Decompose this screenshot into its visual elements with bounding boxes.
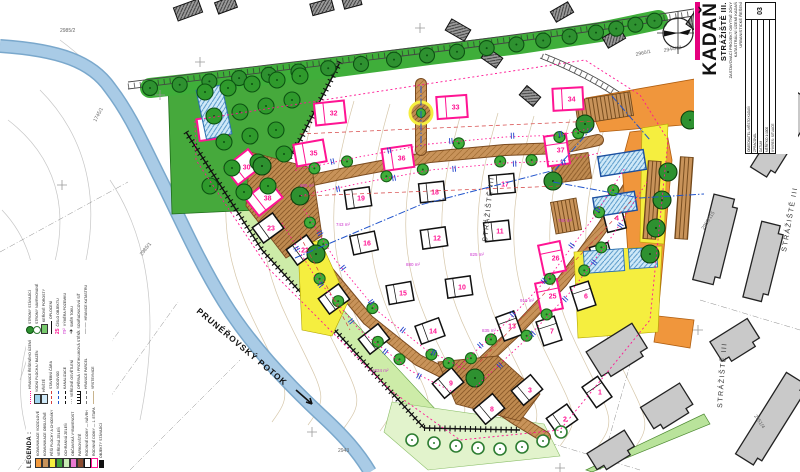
legend-number-sample: 25 (55, 328, 61, 334)
legend-item-label: PARKOVIŠTĚ (77, 434, 83, 456)
legend-item: +SOUŘADNICOVÁ SÍŤ (76, 262, 82, 334)
house-number: 1 (598, 389, 602, 396)
legend-item-label: VEŘEJNÁ ZELEŇ (56, 427, 62, 456)
tree-center (612, 189, 614, 191)
tree-center (542, 440, 544, 442)
existing-small-building (310, 0, 334, 16)
existing-small-building (173, 0, 202, 21)
tree-center (327, 67, 329, 69)
tree-center (486, 47, 488, 49)
legend-item-label: VODNÍ PLOCHA / BAZÉN (34, 350, 40, 392)
existing-apartment-block (736, 372, 800, 467)
tree-center (231, 167, 233, 169)
legend-item-label: OBJEKTY STÁVAJÍCÍ (98, 423, 104, 458)
house-number: 16 (363, 240, 371, 247)
tree-center (569, 36, 571, 38)
house-number: 2 (563, 416, 567, 423)
tree-center (267, 185, 269, 187)
utility-connection-mark (513, 161, 516, 167)
legend-item-label: OBČANSKÁ VYBAVENOST (70, 412, 76, 456)
legend-dashed-line (51, 391, 52, 404)
house-number: 35 (310, 150, 318, 157)
house-number: 23 (267, 225, 275, 232)
legend-dashdot-line: —·— (83, 322, 89, 334)
house-number: 8 (490, 406, 494, 413)
legend-item: PARKOVIŠTĚ (77, 406, 83, 468)
legend-item-label: STROMY STÁVAJÍCÍ (27, 290, 33, 324)
legend-arrow-icon: ➔ (69, 329, 75, 334)
tree-center (448, 362, 450, 364)
legend-item: STROMY NAVRHOVANÉ (34, 262, 40, 334)
tree-center (490, 338, 492, 340)
tree-center (313, 167, 315, 169)
house-number: 38 (264, 195, 272, 202)
legend-fill-swatch (49, 458, 56, 468)
tree-center (227, 87, 229, 89)
title-city: KADAŇ (701, 2, 720, 76)
legend-item: 25ČÍSLO OBJEKTU (55, 262, 61, 334)
legend-fill-swatch (77, 458, 84, 468)
legend-item-label: ČÍSLO OBJEKTU (55, 298, 61, 326)
tree-center (499, 160, 501, 162)
tree-center (595, 32, 597, 34)
tree-center (615, 28, 617, 30)
tree-center (560, 431, 562, 433)
house-number: 32 (330, 110, 338, 117)
tree-center (179, 84, 181, 86)
district-label: STRÁŽIŠTĚ III (779, 186, 799, 252)
plot-area-label: 835 m² (482, 328, 497, 333)
tree-center (583, 269, 585, 271)
contour-line (110, 180, 150, 420)
planned-house-stage1: 32 (314, 100, 346, 125)
tree-center (337, 300, 339, 302)
existing-building-outline (736, 372, 800, 467)
legend-item-label: VEŘEJNÉ OSVĚTLENÍ (69, 360, 75, 397)
legend-item: ···VEŘEJNÉ OSVĚTLENÍ (69, 338, 75, 404)
existing-building-outline (710, 318, 762, 365)
utility-connection-mark (400, 327, 406, 333)
planned-house: 14 (415, 318, 445, 344)
tree-center (411, 439, 413, 441)
legend-outline-swatch (84, 458, 91, 468)
plot-area-label: 695 m² (300, 183, 315, 188)
planned-house: 18 (419, 181, 446, 203)
legend-fill-swatch (56, 458, 63, 468)
tree-center (634, 24, 636, 26)
title-table: OBJEDNATEL: MĚSTO KADAŇZPRACOVALDATUMMĚŘ… (745, 2, 776, 154)
tree-center (655, 227, 657, 229)
house-number: 3 (528, 387, 532, 394)
legend-fill-swatch (42, 458, 49, 468)
legend-item: RODINNÉ DOMY — 1. ETAPA (91, 406, 97, 468)
legend-tick-line (77, 391, 81, 404)
legend-item-label: SOUŘADNICOVÁ SÍŤ (76, 293, 82, 328)
legend-solid-line (51, 321, 52, 334)
tree-center (309, 222, 311, 224)
legend-title: LEGENDA : (27, 406, 33, 468)
parking-strip (550, 198, 581, 234)
legend-fill-swatch (34, 394, 41, 404)
legend-fill-swatch (63, 458, 70, 468)
house-number: 9 (449, 380, 453, 387)
planned-house-stage1: 34 (552, 87, 583, 111)
legend-item-label: SMĚR TOKU (69, 306, 75, 327)
house-number: 30 (243, 164, 251, 171)
legend-item-label: OPLOCENÍ (48, 301, 54, 319)
legend-item: RODINNÉ DOMY — NÁVRH (84, 406, 90, 468)
legend-fill-swatch (41, 324, 48, 334)
legend-item: HRANICE PARCEL (83, 338, 89, 404)
legend-item: VODNÍ PLOCHA / BAZÉN (34, 338, 40, 404)
tree-center (291, 99, 293, 101)
plot-area-label: 760 m² (558, 218, 573, 223)
house-number: 15 (399, 290, 407, 297)
grid-cross (693, 325, 703, 335)
tree-center (515, 43, 517, 45)
planned-house: 13 (496, 311, 522, 341)
parking-strip (675, 157, 694, 240)
legend-dotted-line (30, 391, 31, 404)
tree-center (426, 54, 428, 56)
tree-center (208, 80, 210, 82)
planned-house-stage1: 26 (538, 241, 566, 275)
legend-item: HRANICE ŘEŠENÉHO ÚZEMÍ (27, 338, 33, 404)
plot-area-label: 910 m² (520, 298, 535, 303)
planned-house: 1 (582, 376, 612, 407)
legend-item: OPĚRNÁ / PROTIHLUKOVÁ STĚNA (76, 338, 82, 404)
legend-item-label: RODINNÉ DOMY — NÁVRH (84, 410, 90, 456)
tree-center (261, 165, 263, 167)
tree-center (371, 307, 373, 309)
legend-item-label: HRANICE KATASTRU (83, 285, 89, 320)
top-green-band (150, 20, 658, 88)
tree-center (209, 185, 211, 187)
utility-connection-mark (392, 175, 395, 181)
planned-house: 10 (445, 276, 472, 298)
existing-building-outline (743, 221, 785, 302)
tree-center (319, 278, 321, 280)
plot-area-label: 825 m² (470, 252, 485, 257)
tree-center (542, 40, 544, 42)
tree-center (265, 105, 267, 107)
site-plan-stage: { "labels": { "stream": "PRUNÉŘOVSKÝ POT… (0, 0, 800, 472)
tree-center (499, 448, 501, 450)
title-site: STRÁŽIŠTĚ III. (720, 2, 728, 61)
tree-center (223, 141, 225, 143)
legend-item: KOMUNIKACE VOZIDLOVÉ (35, 406, 41, 468)
tree-center (399, 358, 401, 360)
grid-cross (555, 463, 565, 472)
tree-center (422, 169, 424, 171)
legend-cross-icon: + (76, 330, 82, 334)
planned-house: 15 (386, 281, 414, 304)
plot-area-label: 880 m² (406, 262, 421, 267)
tree-center (315, 253, 317, 255)
house-number: 7 (550, 328, 554, 335)
legend-item-label: VRSTEVNICE (90, 366, 96, 389)
tree-center (526, 335, 528, 337)
legend-dashed-line (58, 391, 59, 404)
legend-item: m²VÝMĚRA POZEMKU (62, 262, 68, 334)
legend-item-label: KANALIZACE (62, 367, 68, 389)
tree-center (531, 159, 533, 161)
parcel-number: 2960/1 (635, 49, 651, 58)
orange-patch (654, 316, 694, 348)
legend-item-label: HRANICE PARCEL (83, 358, 89, 389)
tree-center (238, 77, 240, 79)
tree-center (251, 83, 253, 85)
legend-item-label: VÝMĚRA POZEMKU (62, 293, 68, 326)
planned-house-stage1: 33 (436, 95, 467, 119)
tree-center (549, 278, 551, 280)
legend-outline-swatch (91, 458, 98, 468)
legend-item: —·—HRANICE KATASTRU (83, 262, 89, 334)
tree-center (360, 63, 362, 65)
legend-item: ➔SMĚR TOKU (69, 262, 75, 334)
tree-center (276, 79, 278, 81)
legend-fill-swatch (41, 394, 48, 404)
house-number: 34 (568, 96, 576, 103)
tree-center (322, 243, 324, 245)
house-number: 33 (452, 104, 460, 111)
parcel-number: 2985/2 (60, 28, 76, 34)
utility-connection-mark (477, 342, 483, 348)
planned-house: 16 (350, 231, 378, 255)
utility-connection-mark (569, 243, 575, 248)
legend-area-sample: m² (62, 328, 68, 334)
plot-area-label: 743 m² (336, 222, 351, 227)
planned-house: 19 (344, 187, 371, 209)
grid-cross (415, 23, 425, 33)
utility-connection-mark (449, 138, 452, 144)
house-number: 11 (496, 228, 504, 235)
tree-center (393, 59, 395, 61)
house-number: 12 (433, 235, 441, 242)
legend-fill-swatch (35, 458, 42, 468)
grid-cross (57, 180, 67, 190)
existing-small-building (445, 19, 471, 41)
legend-item-label: RODINNÉ DOMY — 1. ETAPA (91, 407, 97, 456)
existing-small-building (519, 86, 541, 107)
existing-building-outline (693, 194, 740, 286)
parcel-number: 2943 (338, 448, 349, 454)
utility-connection-mark (562, 296, 568, 302)
legend-fill-swatch (99, 460, 104, 468)
tree-center (458, 142, 460, 144)
legend-item-label: OPĚRNÁ / PROTIHLUKOVÁ STĚNA (76, 330, 82, 389)
utility-connection-mark (336, 186, 340, 192)
tree-center (649, 253, 651, 255)
legend-item: HŘIŠTĚ (41, 338, 47, 404)
legend-item-label: KEŘOVÉ POROSTY (41, 289, 47, 322)
legend-dot-symbol: ··· (69, 399, 75, 404)
house-outline (582, 376, 612, 407)
utility-connection-mark (511, 133, 514, 139)
legend-item: KEŘOVÉ POROSTY (41, 262, 47, 334)
tree-center (577, 132, 579, 134)
tree-center (149, 87, 151, 89)
legend-solid-line (93, 391, 94, 404)
legend-item: VRSTEVNICE (90, 338, 96, 404)
legend-item-label: HRANICE ŘEŠENÉHO ÚZEMÍ (27, 340, 33, 389)
utility-connection-mark (340, 265, 346, 271)
planned-house-stage1: 35 (293, 140, 326, 167)
tree-center (477, 447, 479, 449)
tree-center (470, 357, 472, 359)
legend-item-label: PĚŠÍ PLOCHY A CHODNÍKY (49, 410, 55, 456)
existing-small-building (342, 0, 362, 9)
tree-center (667, 171, 669, 173)
plot-area-label: 1024 m² (372, 368, 389, 373)
tree-center (584, 123, 586, 125)
legend-item: OBJEKTY STÁVAJÍCÍ (98, 406, 104, 468)
planned-house-stage1: 36 (382, 145, 415, 171)
house-number: 36 (398, 155, 406, 162)
legend-item: VODOVOD (55, 338, 61, 404)
legend-item-label: OCHRANNÁ ZELEŇ (63, 423, 69, 456)
title-table-row: VÝKRES: SITUACE (770, 20, 775, 153)
legend-item-label: VODOVOD (55, 371, 61, 389)
legend-item: PĚŠÍ PLOCHY A CHODNÍKY (49, 406, 55, 468)
parcel-number: 2944/12 (663, 45, 682, 54)
tree-center (385, 175, 387, 177)
tree-center (455, 445, 457, 447)
house-number: 37 (557, 147, 565, 154)
tree-center (299, 75, 301, 77)
legend-item-label: STAVEBNÍ ČÁRA (48, 361, 54, 389)
site-plan-map: 3132333435363038372625191817232216121121… (0, 0, 800, 472)
house-number: 19 (357, 195, 365, 202)
legend-dashed-line (86, 391, 87, 404)
tree-center (600, 246, 602, 248)
tree-center (346, 160, 348, 162)
legend-dashed-line (65, 391, 66, 404)
legend-item-label: KOMUNIKACE VOZIDLOVÉ (35, 411, 41, 456)
parcel-line (130, 360, 240, 470)
title-block: KADAŇ STRÁŽIŠTĚ III. ZASTAVOVACÍ PROJEKT… (694, 2, 798, 154)
house-number: 10 (458, 284, 466, 291)
utility-connection-mark (453, 166, 456, 172)
tree-center (249, 135, 251, 137)
grid-cross (307, 427, 317, 437)
legend-item: VEŘEJNÁ ZELEŇ (56, 406, 62, 468)
parcel-number: 2985/1 (139, 241, 153, 257)
parcel-line (0, 182, 128, 252)
house-number: 6 (584, 293, 588, 300)
legend-item: OPLOCENÍ (48, 262, 54, 334)
tree-center (521, 446, 523, 448)
legend-item: STROMY STÁVAJÍCÍ (27, 262, 33, 334)
planned-house: 12 (420, 227, 447, 249)
tree-center (204, 91, 206, 93)
house-number: 26 (552, 255, 560, 262)
tree-center (654, 20, 656, 22)
legend-item: OCHRANNÁ ZELEŇ (63, 406, 69, 468)
existing-apartment-block (710, 318, 762, 365)
house-number: 4 (615, 215, 619, 222)
legend-item-label: STROMY NAVRHOVANÉ (34, 284, 40, 324)
legend-fill-swatch (70, 458, 77, 468)
legend-item-label: HŘIŠTĚ (41, 379, 47, 392)
legend-item: STAVEBNÍ ČÁRA (48, 338, 54, 404)
legend-item-label: KOMUNIKACE OBSLUŽNÉ (42, 412, 48, 456)
utility-connection-mark (331, 158, 335, 164)
sheet-number: 03 (746, 3, 775, 20)
title-subline-3: URBANISTICKÉ ŘEŠENÍ (738, 2, 743, 48)
existing-small-building (550, 2, 573, 22)
tree-center (456, 51, 458, 53)
parcel-number: 1745/1 (92, 106, 105, 123)
tree-center (243, 191, 245, 193)
house-number: 14 (429, 328, 437, 335)
tree-center (433, 442, 435, 444)
legend-item: OBČANSKÁ VYBAVENOST (70, 406, 76, 468)
legend: LEGENDA : KOMUNIKACE VOZIDLOVÉKOMUNIKACE… (26, 260, 112, 470)
tree-center (377, 341, 379, 343)
existing-apartment-block (743, 221, 785, 302)
existing-apartment-block (693, 194, 740, 286)
tree-center (268, 74, 270, 76)
tree-center (546, 313, 548, 315)
legend-item: KOMUNIKACE OBSLUŽNÉ (42, 406, 48, 468)
tree-center (283, 153, 285, 155)
legend-item: KANALIZACE (62, 338, 68, 404)
tree-center (689, 119, 691, 121)
tree-center (474, 377, 476, 379)
house-number: 25 (549, 293, 557, 300)
tree-center (275, 129, 277, 131)
existing-small-building (215, 0, 238, 14)
grid-cross (195, 57, 205, 67)
